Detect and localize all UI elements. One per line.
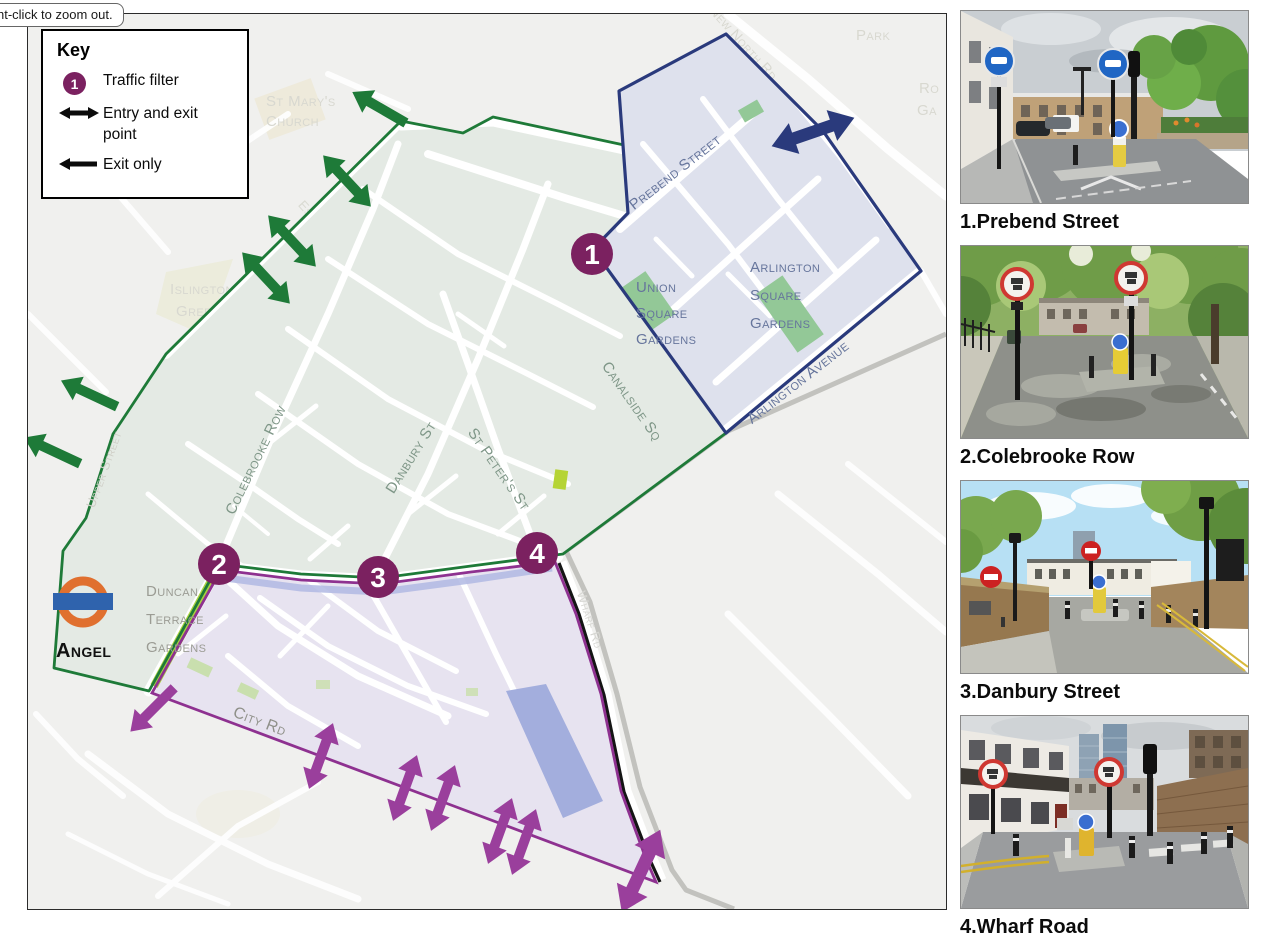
zoom-tooltip: ht-click to zoom out. (0, 3, 124, 27)
svg-text:Terrace: Terrace (146, 611, 204, 628)
svg-text:3: 3 (370, 562, 386, 593)
page: St Mary's Church Islington Green Park Ne… (0, 0, 1270, 941)
traffic-filter-marker-3: 3 (357, 556, 399, 598)
svg-text:4: 4 (529, 538, 545, 569)
svg-text:Ro: Ro (919, 80, 939, 97)
traffic-filter-icon: 1 (63, 72, 86, 95)
key-item-entry-exit: Entry and exit point (57, 104, 235, 146)
photo-colebrooke-row (960, 245, 1249, 439)
caption-wharf-road: 4.Wharf Road (960, 916, 1248, 938)
svg-text:Square: Square (636, 305, 688, 322)
photo-figure-prebend-street: 1.Prebend Street (960, 10, 1248, 233)
ltn-map-panel[interactable]: St Mary's Church Islington Green Park Ne… (27, 13, 947, 910)
traffic-filter-marker-1: 1 (571, 233, 613, 275)
key-item-exit-only: Exit only (57, 155, 235, 176)
svg-text:Gardens: Gardens (636, 331, 696, 348)
map-key: Key 1 Traffic filter Entry and exit poin… (41, 29, 249, 199)
double-arrow-icon (57, 104, 103, 121)
photo-figure-danbury-street: 3.Danbury Street (960, 480, 1248, 703)
photo-prebend-street (960, 10, 1249, 204)
traffic-filter-marker-4: 4 (516, 532, 558, 574)
caption-danbury-street: 3.Danbury Street (960, 681, 1248, 703)
caption-colebrooke-row: 2.Colebrooke Row (960, 446, 1248, 468)
photo-wharf-road (960, 715, 1249, 909)
svg-text:Arlington: Arlington (750, 259, 820, 276)
street-photos-panel: 1.Prebend Street (960, 10, 1248, 941)
single-arrow-icon (57, 155, 103, 172)
svg-text:St Mary's: St Mary's (266, 93, 336, 110)
svg-text:Gardens: Gardens (146, 639, 206, 656)
svg-text:Church: Church (266, 113, 319, 130)
svg-text:Gardens: Gardens (750, 315, 810, 332)
svg-text:Duncan: Duncan (146, 583, 198, 600)
svg-text:Ga: Ga (917, 102, 937, 119)
svg-text:Park: Park (856, 27, 890, 44)
angel-label: Angel (56, 640, 111, 662)
photo-danbury-street (960, 480, 1249, 674)
photo-figure-wharf-road: 4.Wharf Road (960, 715, 1248, 938)
svg-text:2: 2 (211, 549, 227, 580)
svg-text:Square: Square (750, 287, 802, 304)
caption-prebend-street: 1.Prebend Street (960, 211, 1248, 233)
key-item-traffic-filter: 1 Traffic filter (57, 71, 235, 95)
key-title: Key (57, 40, 235, 61)
svg-text:Union: Union (636, 279, 676, 296)
traffic-filter-marker-2: 2 (198, 543, 240, 585)
photo-figure-colebrooke-row: 2.Colebrooke Row (960, 245, 1248, 468)
svg-text:1: 1 (584, 239, 600, 270)
